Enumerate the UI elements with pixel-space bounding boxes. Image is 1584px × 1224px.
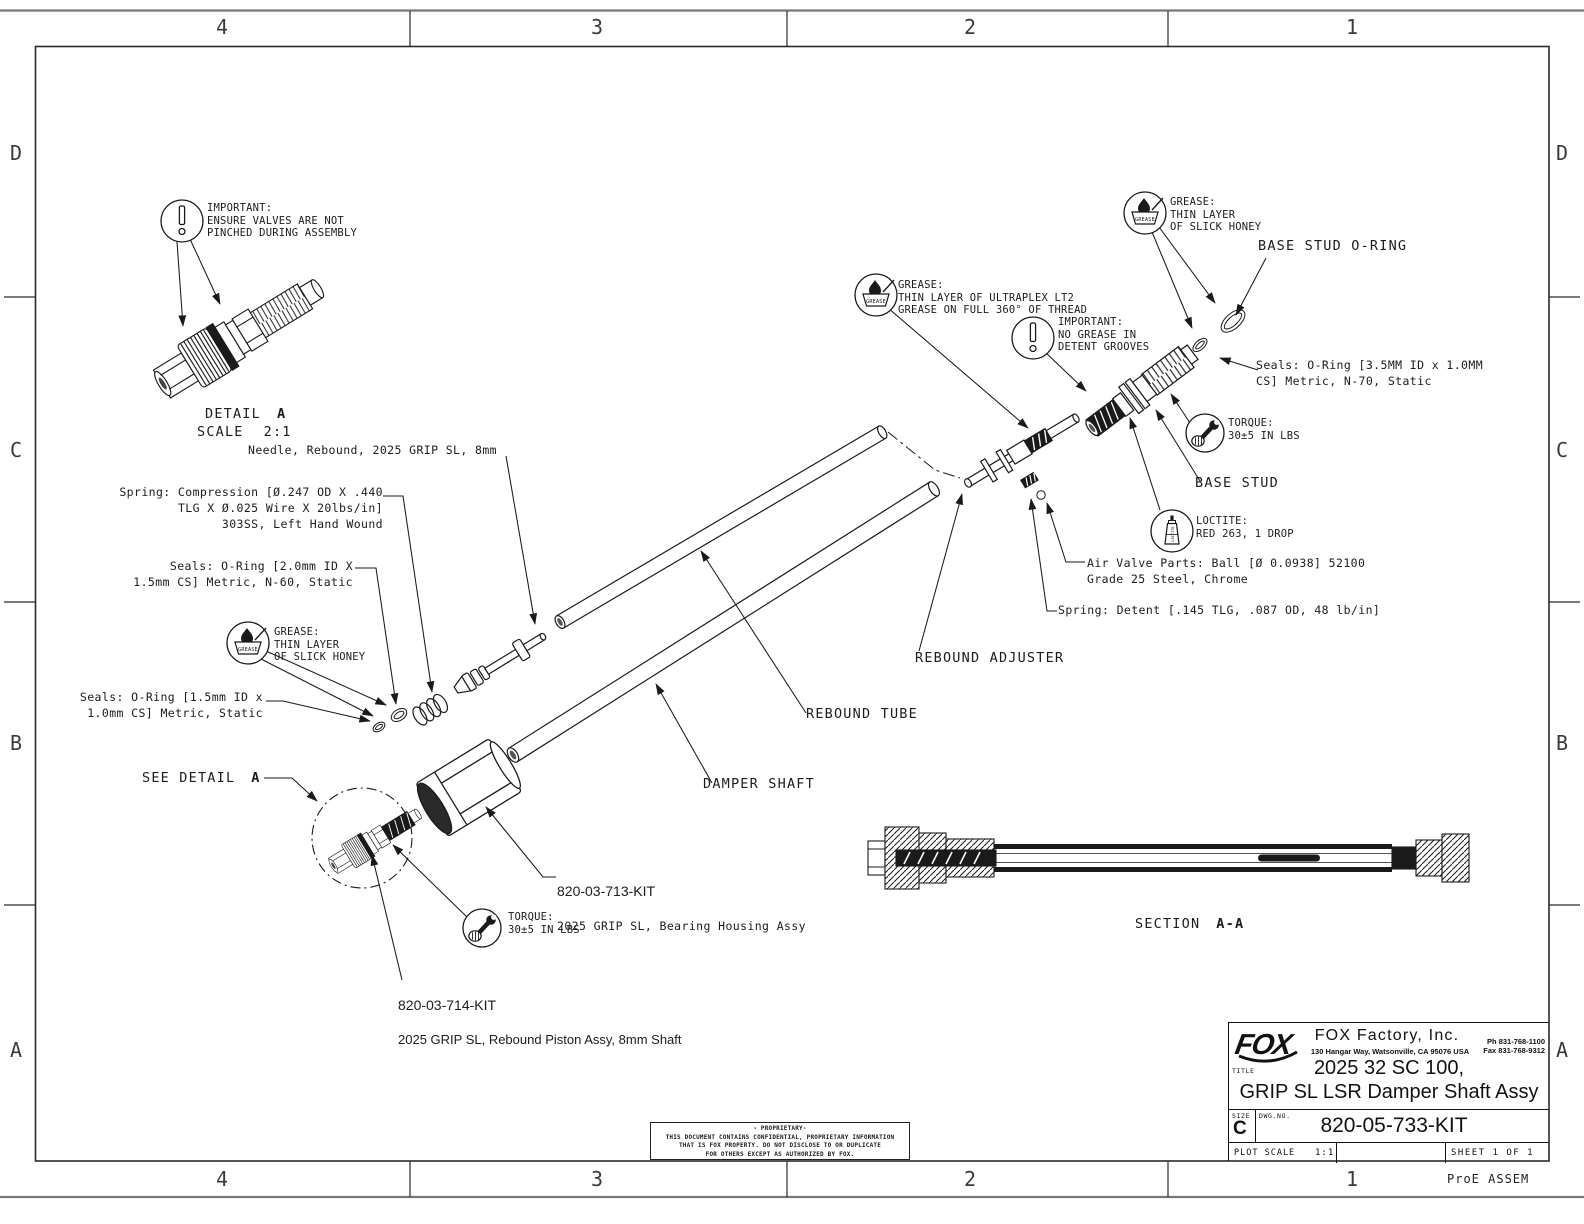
zone-row-a-right: A (1556, 1040, 1568, 1060)
zone-col-2-bottom: 2 (964, 1169, 976, 1189)
base-stud-label: BASE STUD (1195, 475, 1279, 491)
o-ring-35mm (1191, 336, 1210, 354)
proprietary-line: FOR OTHERS EXCEPT AS AUTHORIZED BY FOX. (651, 1151, 909, 1160)
zone-row-d-left: D (10, 143, 22, 163)
detent-ball (1037, 491, 1045, 499)
important-icon (161, 200, 203, 242)
o-ring-2mm (389, 706, 409, 724)
zone-row-a-left: A (10, 1040, 22, 1060)
compression-spring (410, 692, 450, 727)
detail-a-title: DETAILA (205, 406, 286, 422)
grease-ultraplex-note: GREASE: THIN LAYER OF ULTRAPLEX LT2 GREA… (898, 279, 1087, 317)
company-phone-fax: Ph 831-768-1100 Fax 831-768-9312 (1483, 1037, 1545, 1055)
loctite-note: LOCTITE: RED 263, 1 DROP (1196, 515, 1294, 540)
torque-right-note: TORQUE: 30±5 IN LBS (1228, 417, 1300, 442)
air-valve-callout: Air Valve Parts: Ball [Ø 0.0938] 52100 G… (1087, 555, 1365, 587)
kit-714-label: 820-03-714-KIT 2025 GRIP SL, Rebound Pis… (398, 978, 682, 1067)
zone-row-c-left: C (10, 440, 22, 460)
detent-spring (1021, 472, 1038, 487)
rebound-needle (451, 626, 551, 699)
detail-ref: A (277, 406, 286, 422)
proprietary-line: THAT IS FOX PROPERTY. DO NOT DISCLOSE TO… (651, 1142, 909, 1151)
section-a-a-view (868, 827, 1469, 889)
kit-713-number: 820-03-713-KIT (557, 883, 806, 899)
kit-714-number: 820-03-714-KIT (398, 997, 682, 1013)
seals-oring-15mm-callout: Seals: O-Ring [1.5mm ID x 1.0mm CS] Metr… (72, 689, 263, 721)
zone-col-4-bottom: 4 (216, 1169, 228, 1189)
detail-a-scale: SCALE2:1 (197, 424, 292, 440)
section-text: SECTION (1135, 916, 1200, 932)
zone-col-1-bottom: 1 (1346, 1169, 1358, 1189)
see-detail-label: SEE DETAILA (142, 770, 261, 786)
kit-713-desc: 2025 GRIP SL, Bearing Housing Assy (557, 918, 806, 934)
drawing-title-line1: 2025 32 SC 100, (1229, 1057, 1549, 1080)
seals-oring-35mm-callout: Seals: O-Ring [3.5MM ID x 1.0MM CS] Metr… (1256, 357, 1483, 389)
section-ref: A-A (1216, 916, 1244, 932)
plot-scale-value: 1:1 (1315, 1148, 1334, 1158)
grease-left-note: GREASE: THIN LAYER OF SLICK HONEY (274, 626, 365, 664)
drawing-title-line2: GRIP SL LSR Damper Shaft Assy (1229, 1081, 1549, 1104)
zone-row-b-right: B (1556, 733, 1568, 753)
base-stud-o-ring-part (1217, 306, 1249, 337)
torque-icon (463, 909, 501, 947)
kit-713-label: 820-03-713-KIT 2025 GRIP SL, Bearing Hou… (557, 864, 806, 953)
grease-right-note: GREASE: THIN LAYER OF SLICK HONEY (1170, 196, 1261, 234)
centerline (888, 432, 960, 478)
o-ring-small (371, 720, 386, 734)
rebound-tube-part (553, 424, 889, 630)
spring-detent-callout: Spring: Detent [.145 TLG, .087 OD, 48 lb… (1058, 602, 1380, 618)
zone-row-d-right: D (1556, 143, 1568, 163)
needle-callout: Needle, Rebound, 2025 GRIP SL, 8mm (248, 442, 497, 458)
title-block-row-scale: PLOT SCALE 1:1 SHEET 1 OF 1 (1229, 1142, 1549, 1162)
important-detent-note: IMPORTANT: NO GREASE IN DETENT GROOVES (1058, 316, 1149, 354)
company-fax: Fax 831-768-9312 (1483, 1046, 1545, 1055)
grease-icon (855, 274, 897, 316)
company-name: FOX Factory, Inc. (1307, 1027, 1467, 1045)
see-detail-ref: A (251, 770, 260, 786)
zone-row-c-right: C (1556, 440, 1568, 460)
proprietary-notice: - PROPRIETARY- THIS DOCUMENT CONTAINS CO… (650, 1122, 910, 1160)
company-address: 130 Hangar Way, Watsonville, CA 95076 US… (1305, 1047, 1475, 1056)
divider (1445, 1143, 1446, 1163)
scale-label: SCALE (197, 424, 244, 440)
zone-col-3-top: 3 (591, 17, 603, 37)
base-stud-part (1079, 339, 1202, 443)
kit-714-desc: 2025 GRIP SL, Rebound Piston Assy, 8mm S… (398, 1032, 682, 1048)
divider (1255, 1110, 1256, 1143)
detail-a-part (146, 266, 333, 407)
dwg-number: 820-05-733-KIT (1259, 1114, 1529, 1138)
title-block-row-size: SIZE C DWG.NO. 820-05-733-KIT (1229, 1109, 1549, 1142)
loctite-icon (1151, 510, 1193, 552)
grease-icon (1124, 192, 1166, 234)
zone-row-b-left: B (10, 733, 22, 753)
proe-assem-note: ProE ASSEM (1447, 1172, 1529, 1186)
seals-oring-2mm-callout: Seals: O-Ring [2.0mm ID X 1.5mm CS] Metr… (90, 558, 353, 590)
rebound-adjuster-label: REBOUND ADJUSTER (915, 650, 1064, 666)
title-block: FOX FOX Factory, Inc. 130 Hangar Way, Wa… (1228, 1022, 1549, 1161)
base-stud-oring-label: BASE STUD O-RING (1258, 238, 1407, 254)
rebound-piston-assy (324, 801, 426, 878)
spring-compression-callout: Spring: Compression [Ø.247 OD X .440 TLG… (100, 484, 383, 532)
zone-col-3-bottom: 3 (591, 1169, 603, 1189)
section-label: SECTIONA-A (1135, 916, 1244, 932)
size-value: C (1233, 1118, 1247, 1140)
see-detail-text: SEE DETAIL (142, 770, 235, 786)
plot-scale-label: PLOT SCALE (1234, 1148, 1295, 1158)
zone-col-1-top: 1 (1346, 17, 1358, 37)
proprietary-line: - PROPRIETARY- (651, 1125, 909, 1134)
important-assembly-note: IMPORTANT: ENSURE VALVES ARE NOT PINCHED… (207, 202, 357, 240)
damper-shaft-label: DAMPER SHAFT (703, 776, 815, 792)
torque-icon (1186, 414, 1224, 452)
detail-label: DETAIL (205, 406, 261, 422)
zone-col-4-top: 4 (216, 17, 228, 37)
company-phone: Ph 831-768-1100 (1483, 1037, 1545, 1046)
divider (1336, 1143, 1337, 1163)
grease-icon (227, 622, 269, 664)
sheet-count: SHEET 1 OF 1 (1451, 1148, 1534, 1158)
proprietary-line: THIS DOCUMENT CONTAINS CONFIDENTIAL, PRO… (651, 1134, 909, 1143)
scale-value: 2:1 (264, 424, 292, 440)
zone-col-2-top: 2 (964, 17, 976, 37)
important-icon (1012, 317, 1054, 359)
rebound-tube-label: REBOUND TUBE (806, 706, 918, 722)
drawing-sheet: GREASE LOCTITE (0, 0, 1584, 1224)
